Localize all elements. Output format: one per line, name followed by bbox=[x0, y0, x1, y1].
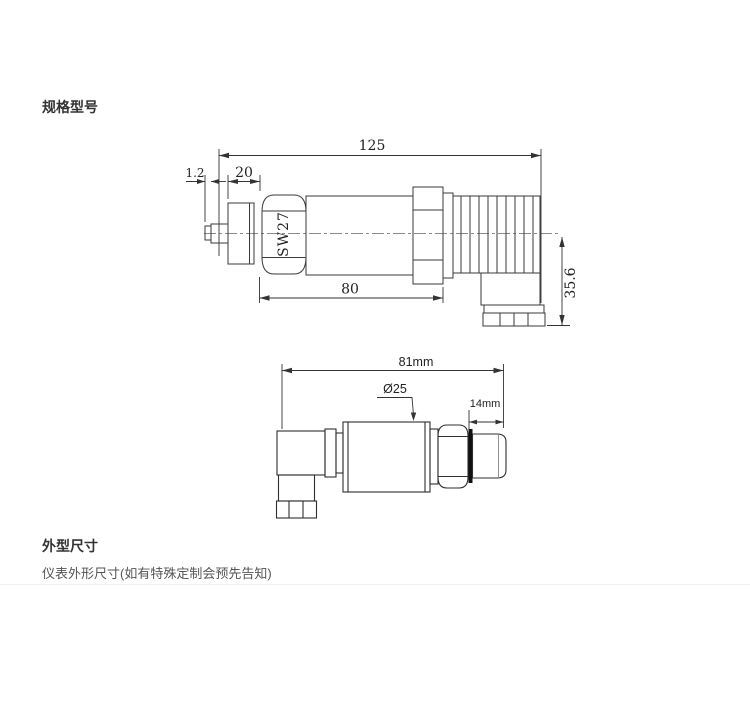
dimension-body-length: 80 bbox=[260, 277, 444, 303]
main-cylinder bbox=[343, 422, 430, 492]
dim-label-35-6: 35.6 bbox=[563, 267, 579, 298]
elbow-connector-block bbox=[277, 431, 325, 475]
connector-plate bbox=[325, 429, 336, 477]
dimension-connector-height: 35.6 bbox=[547, 237, 579, 326]
elbow-lower-block bbox=[279, 475, 315, 501]
dimension-thread-length: 14mm bbox=[469, 398, 504, 429]
collar-hex bbox=[413, 187, 443, 284]
compact-body-outline bbox=[277, 422, 507, 518]
hex-size-label: SW27 bbox=[276, 211, 292, 257]
section-divider bbox=[0, 584, 750, 585]
outline-dimensions-note: 仪表外形尺寸(如有特殊定制会预先告知) bbox=[42, 566, 272, 581]
dim-label-125: 125 bbox=[359, 138, 386, 154]
thread-stub bbox=[473, 434, 507, 478]
body-step bbox=[430, 429, 438, 484]
dim-label-80: 80 bbox=[341, 282, 359, 298]
section-title-outline-dimensions: 外型尺寸 bbox=[42, 538, 98, 554]
dim-label-20: 20 bbox=[235, 165, 253, 181]
diaphragm-tip bbox=[205, 226, 211, 240]
cable-gland bbox=[277, 501, 317, 518]
outline-drawing-side-view: 125 1.2 20 80 35.6 SW27 bbox=[180, 135, 600, 335]
dimension-port-length: 20 bbox=[228, 165, 260, 199]
main-cylinder bbox=[306, 196, 413, 275]
outline-drawing-compact-view: 81mm Ø25 14mm bbox=[255, 350, 525, 525]
connector-flange bbox=[484, 305, 544, 313]
transmitter-body-outline bbox=[205, 187, 545, 326]
dimension-overall-length: 125 bbox=[219, 138, 541, 303]
dim-label-14mm: 14mm bbox=[470, 398, 501, 410]
dim-label-d25: Ø25 bbox=[383, 382, 407, 396]
section-title-specifications: 规格型号 bbox=[42, 99, 98, 115]
connector-plate-2 bbox=[336, 433, 343, 473]
dimension-diameter: Ø25 bbox=[377, 382, 416, 421]
collar-step bbox=[443, 193, 453, 278]
connector-lower-housing bbox=[481, 273, 540, 305]
dimension-tip: 1.2 bbox=[185, 166, 226, 222]
dim-label-81mm: 81mm bbox=[399, 355, 434, 369]
hex-nut bbox=[438, 425, 468, 488]
dim-label-1-2: 1.2 bbox=[185, 166, 204, 180]
